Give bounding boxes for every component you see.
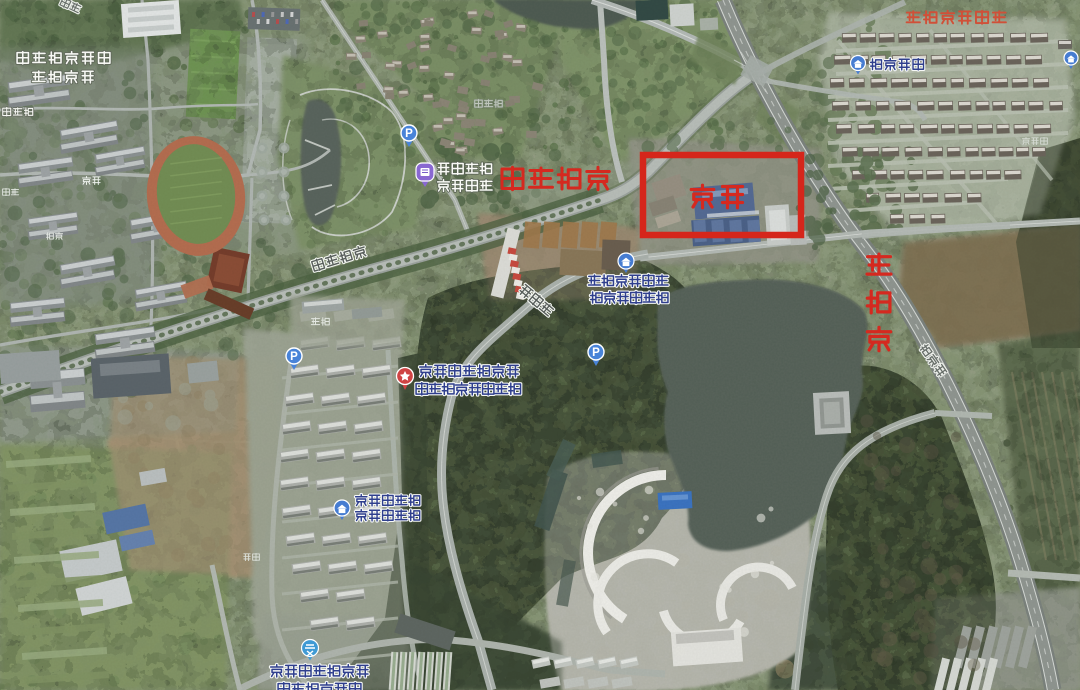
svg-text:P: P [592,347,600,359]
svg-text:P: P [290,351,298,363]
svg-text:P: P [405,128,413,140]
